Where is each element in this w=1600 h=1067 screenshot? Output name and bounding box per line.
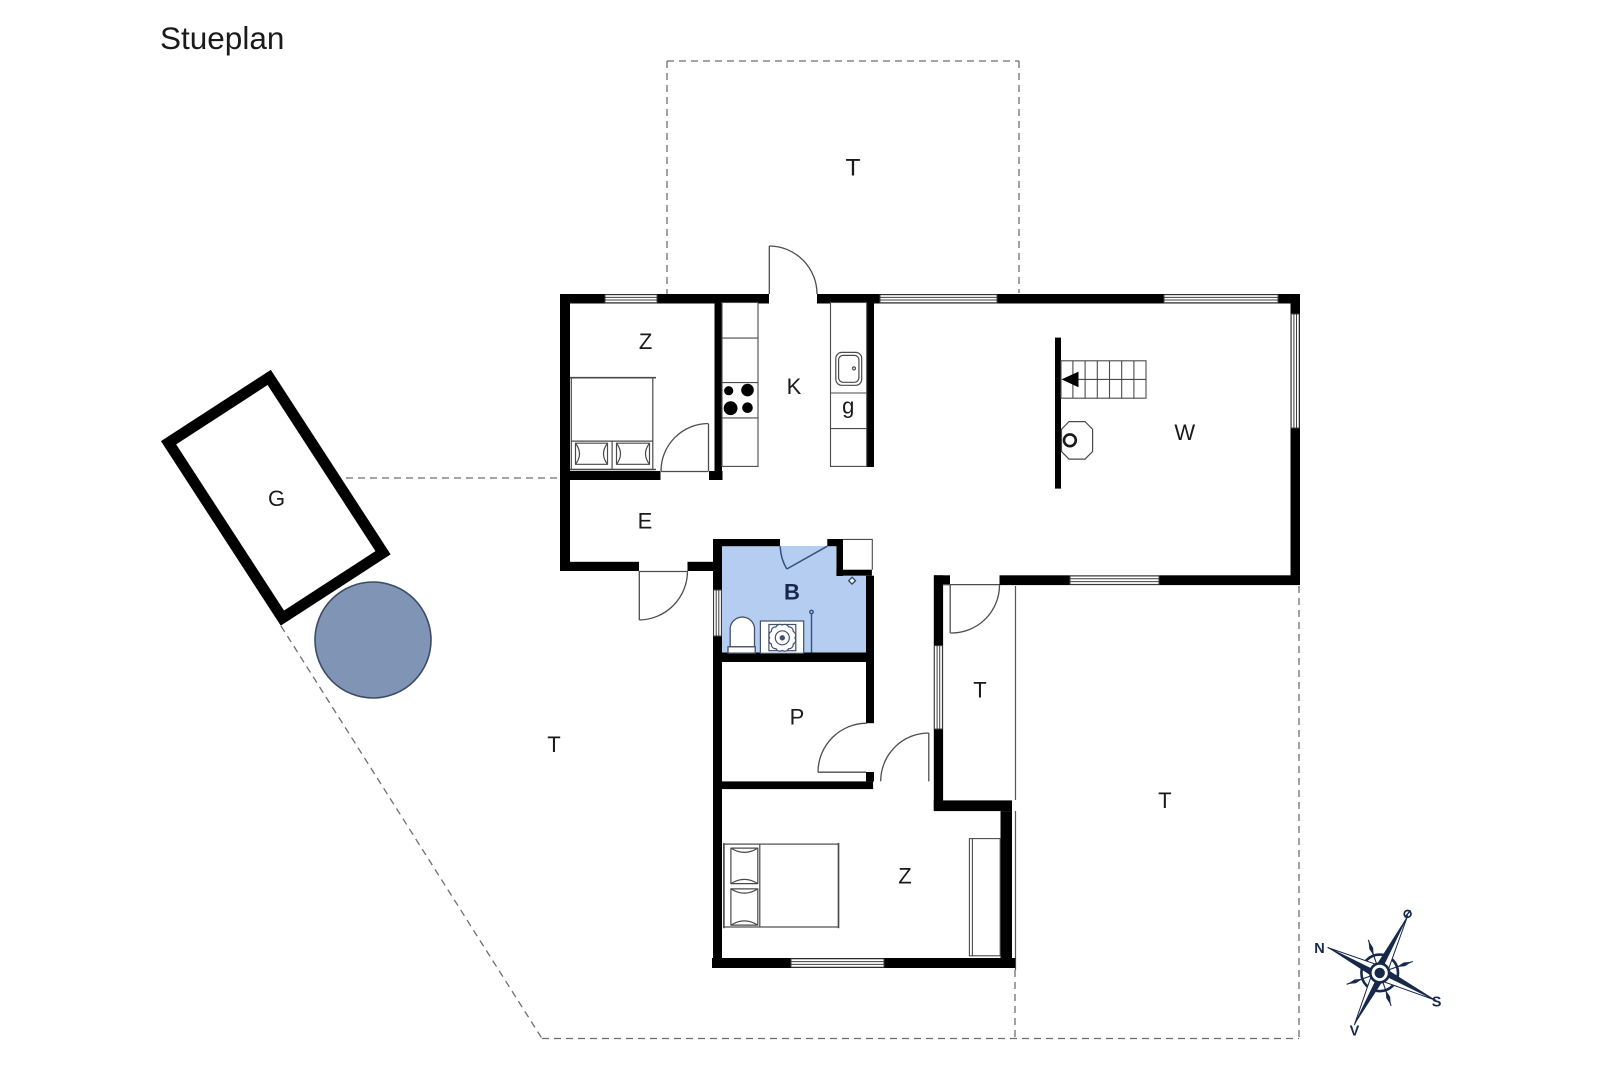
svg-text:S: S (1432, 994, 1442, 1010)
svg-text:T: T (1158, 788, 1171, 813)
svg-text:E: E (638, 509, 653, 534)
svg-text:B: B (784, 579, 800, 604)
svg-text:T: T (973, 678, 986, 703)
svg-text:P: P (790, 704, 805, 729)
svg-text:Stueplan: Stueplan (160, 20, 284, 56)
svg-text:K: K (787, 374, 802, 399)
svg-text:G: G (268, 486, 285, 511)
svg-text:V: V (1350, 1023, 1360, 1039)
svg-text:T: T (846, 154, 861, 181)
svg-text:W: W (1174, 420, 1195, 445)
svg-text:Z: Z (898, 864, 911, 889)
svg-text:T: T (547, 732, 560, 757)
svg-text:Z: Z (639, 329, 652, 354)
svg-text:N: N (1314, 941, 1324, 957)
svg-text:g: g (842, 394, 854, 419)
